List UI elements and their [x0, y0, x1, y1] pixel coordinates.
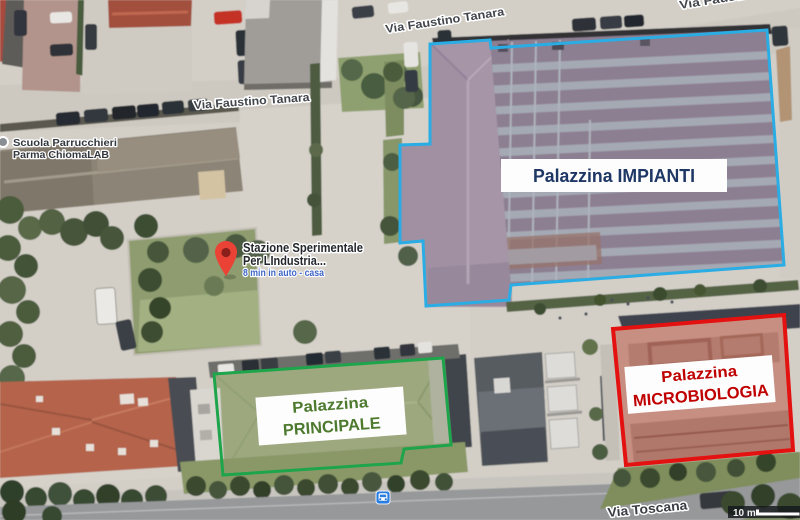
svg-text:8 min in auto - casa: 8 min in auto - casa	[243, 267, 324, 279]
svg-text:Per LIndustria...: Per LIndustria...	[243, 254, 326, 268]
svg-text:Stazione Sperimentale: Stazione Sperimentale	[243, 241, 363, 255]
svg-text:Scuola Parrucchieri: Scuola Parrucchieri	[13, 137, 117, 149]
svg-text:Palazzina IMPIANTI: Palazzina IMPIANTI	[533, 166, 695, 186]
svg-text:Parma ChiomaLAB: Parma ChiomaLAB	[13, 149, 109, 161]
svg-text:10 m: 10 m	[733, 508, 756, 519]
